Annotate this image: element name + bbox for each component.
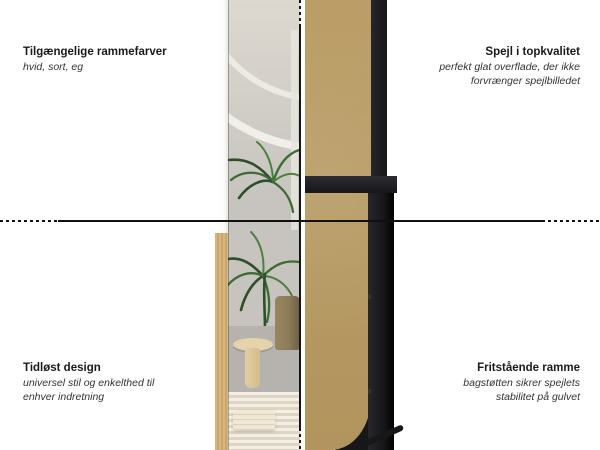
support-hinge-bar (305, 176, 397, 193)
mirror-front-view (215, 0, 300, 450)
black-frame-edge (371, 0, 387, 178)
annotation-bottom-left: Tidløst design universel stil og enkelth… (23, 361, 223, 404)
mdf-backboard (305, 0, 371, 450)
annotation-top-left: Tilgængelige rammefarver hvid, sort, eg (23, 45, 223, 75)
annotation-description: universel stil og enkelthed til enhver i… (23, 377, 223, 404)
annotation-bottom-right: Fritstående ramme bagstøtten sikrer spej… (380, 361, 580, 404)
horizontal-divider-dotted-right (542, 220, 600, 222)
product-photo (215, 0, 390, 450)
screw (368, 294, 371, 299)
vertical-divider-dotted-bottom (299, 428, 301, 450)
mirror-back-view (305, 0, 390, 450)
annotation-title: Spejl i topkvalitet (380, 45, 580, 59)
horizontal-divider-dotted-left (0, 220, 58, 222)
support-leg (368, 178, 394, 450)
mirror-glass-edge (228, 0, 229, 450)
annotation-title: Tilgængelige rammefarver (23, 45, 223, 59)
oak-frame-edge (215, 233, 228, 450)
annotation-description: bagstøtten sikrer spejlets stabilitet på… (380, 377, 580, 404)
vertical-divider-dotted-top (299, 0, 301, 28)
annotation-title: Tidløst design (23, 361, 223, 375)
towel-stack-reflection (233, 410, 275, 430)
annotation-description: perfekt glat overflade, der ikke forvræn… (380, 61, 580, 88)
screw (368, 389, 371, 394)
stool-base-reflection (245, 348, 260, 388)
annotation-description: hvid, sort, eg (23, 61, 223, 75)
annotation-title: Fritstående ramme (380, 361, 580, 375)
annotation-top-right: Spejl i topkvalitet perfekt glat overfla… (380, 45, 580, 88)
product-infographic: Tilgængelige rammefarver hvid, sort, eg … (0, 0, 600, 450)
vertical-seam-line (299, 26, 301, 430)
plant-pot-reflection (275, 296, 300, 350)
white-frame-edge (215, 0, 228, 233)
